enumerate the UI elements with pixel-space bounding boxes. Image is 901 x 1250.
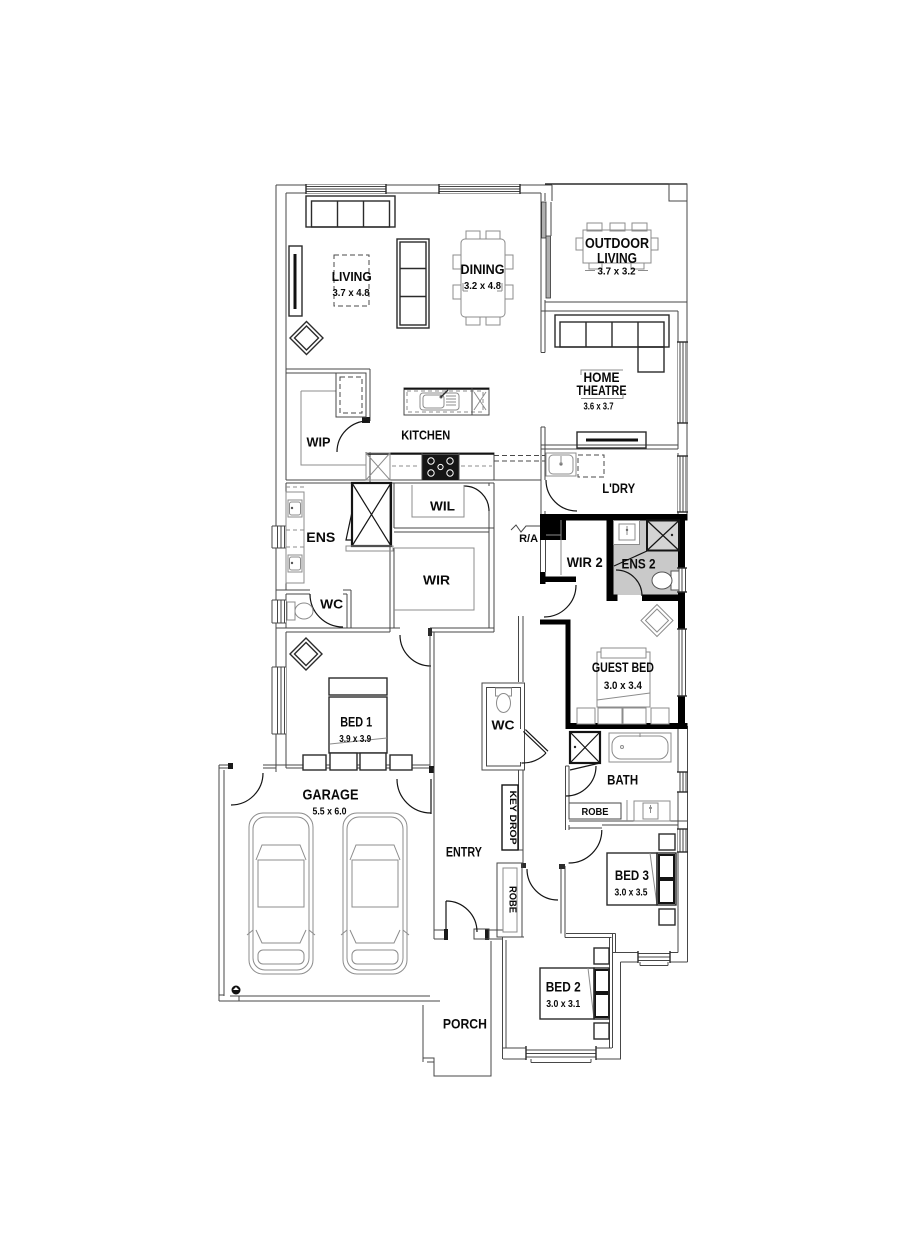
svg-text:3.7 x 3.2: 3.7 x 3.2: [598, 266, 636, 278]
svg-text:ENS: ENS: [306, 530, 335, 545]
svg-text:WIP: WIP: [307, 435, 331, 450]
svg-text:ENTRY: ENTRY: [446, 845, 482, 860]
svg-text:DINING: DINING: [461, 262, 505, 277]
svg-text:ENS 2: ENS 2: [622, 557, 656, 572]
svg-text:BATH: BATH: [607, 772, 638, 788]
svg-text:BED 2: BED 2: [546, 980, 581, 995]
svg-text:WIR: WIR: [423, 573, 451, 588]
svg-text:5.5 x 6.0: 5.5 x 6.0: [313, 806, 347, 818]
svg-text:GARAGE: GARAGE: [303, 787, 359, 804]
svg-text:WIR 2: WIR 2: [567, 555, 603, 570]
svg-text:3.0 x 3.1: 3.0 x 3.1: [546, 998, 580, 1010]
svg-text:ROBE: ROBE: [582, 806, 609, 818]
svg-text:BED 1: BED 1: [340, 715, 372, 730]
svg-text:THEATRE: THEATRE: [577, 383, 627, 398]
svg-text:BED 3: BED 3: [615, 868, 649, 883]
svg-text:KITCHEN: KITCHEN: [401, 428, 450, 443]
svg-text:LIVING: LIVING: [332, 269, 372, 284]
svg-text:ROBE: ROBE: [506, 886, 518, 913]
svg-text:OUTDOOR: OUTDOOR: [585, 236, 649, 252]
svg-text:WIL: WIL: [430, 499, 455, 514]
svg-text:KEY DROP: KEY DROP: [507, 791, 518, 846]
svg-text:3.6 x 3.7: 3.6 x 3.7: [584, 401, 614, 413]
svg-text:PORCH: PORCH: [443, 1016, 487, 1032]
svg-text:3.9 x 3.9: 3.9 x 3.9: [339, 733, 371, 745]
svg-text:3.2 x 4.8: 3.2 x 4.8: [464, 280, 501, 292]
svg-text:R/A: R/A: [519, 533, 538, 545]
svg-text:3.7 x 4.8: 3.7 x 4.8: [333, 287, 370, 299]
svg-text:GUEST BED: GUEST BED: [592, 659, 654, 675]
svg-text:3.0 x 3.5: 3.0 x 3.5: [615, 887, 648, 899]
svg-text:L'DRY: L'DRY: [602, 481, 635, 496]
svg-text:WC: WC: [492, 718, 516, 733]
svg-text:3.0 x 3.4: 3.0 x 3.4: [604, 680, 643, 692]
svg-text:WC: WC: [320, 597, 344, 612]
